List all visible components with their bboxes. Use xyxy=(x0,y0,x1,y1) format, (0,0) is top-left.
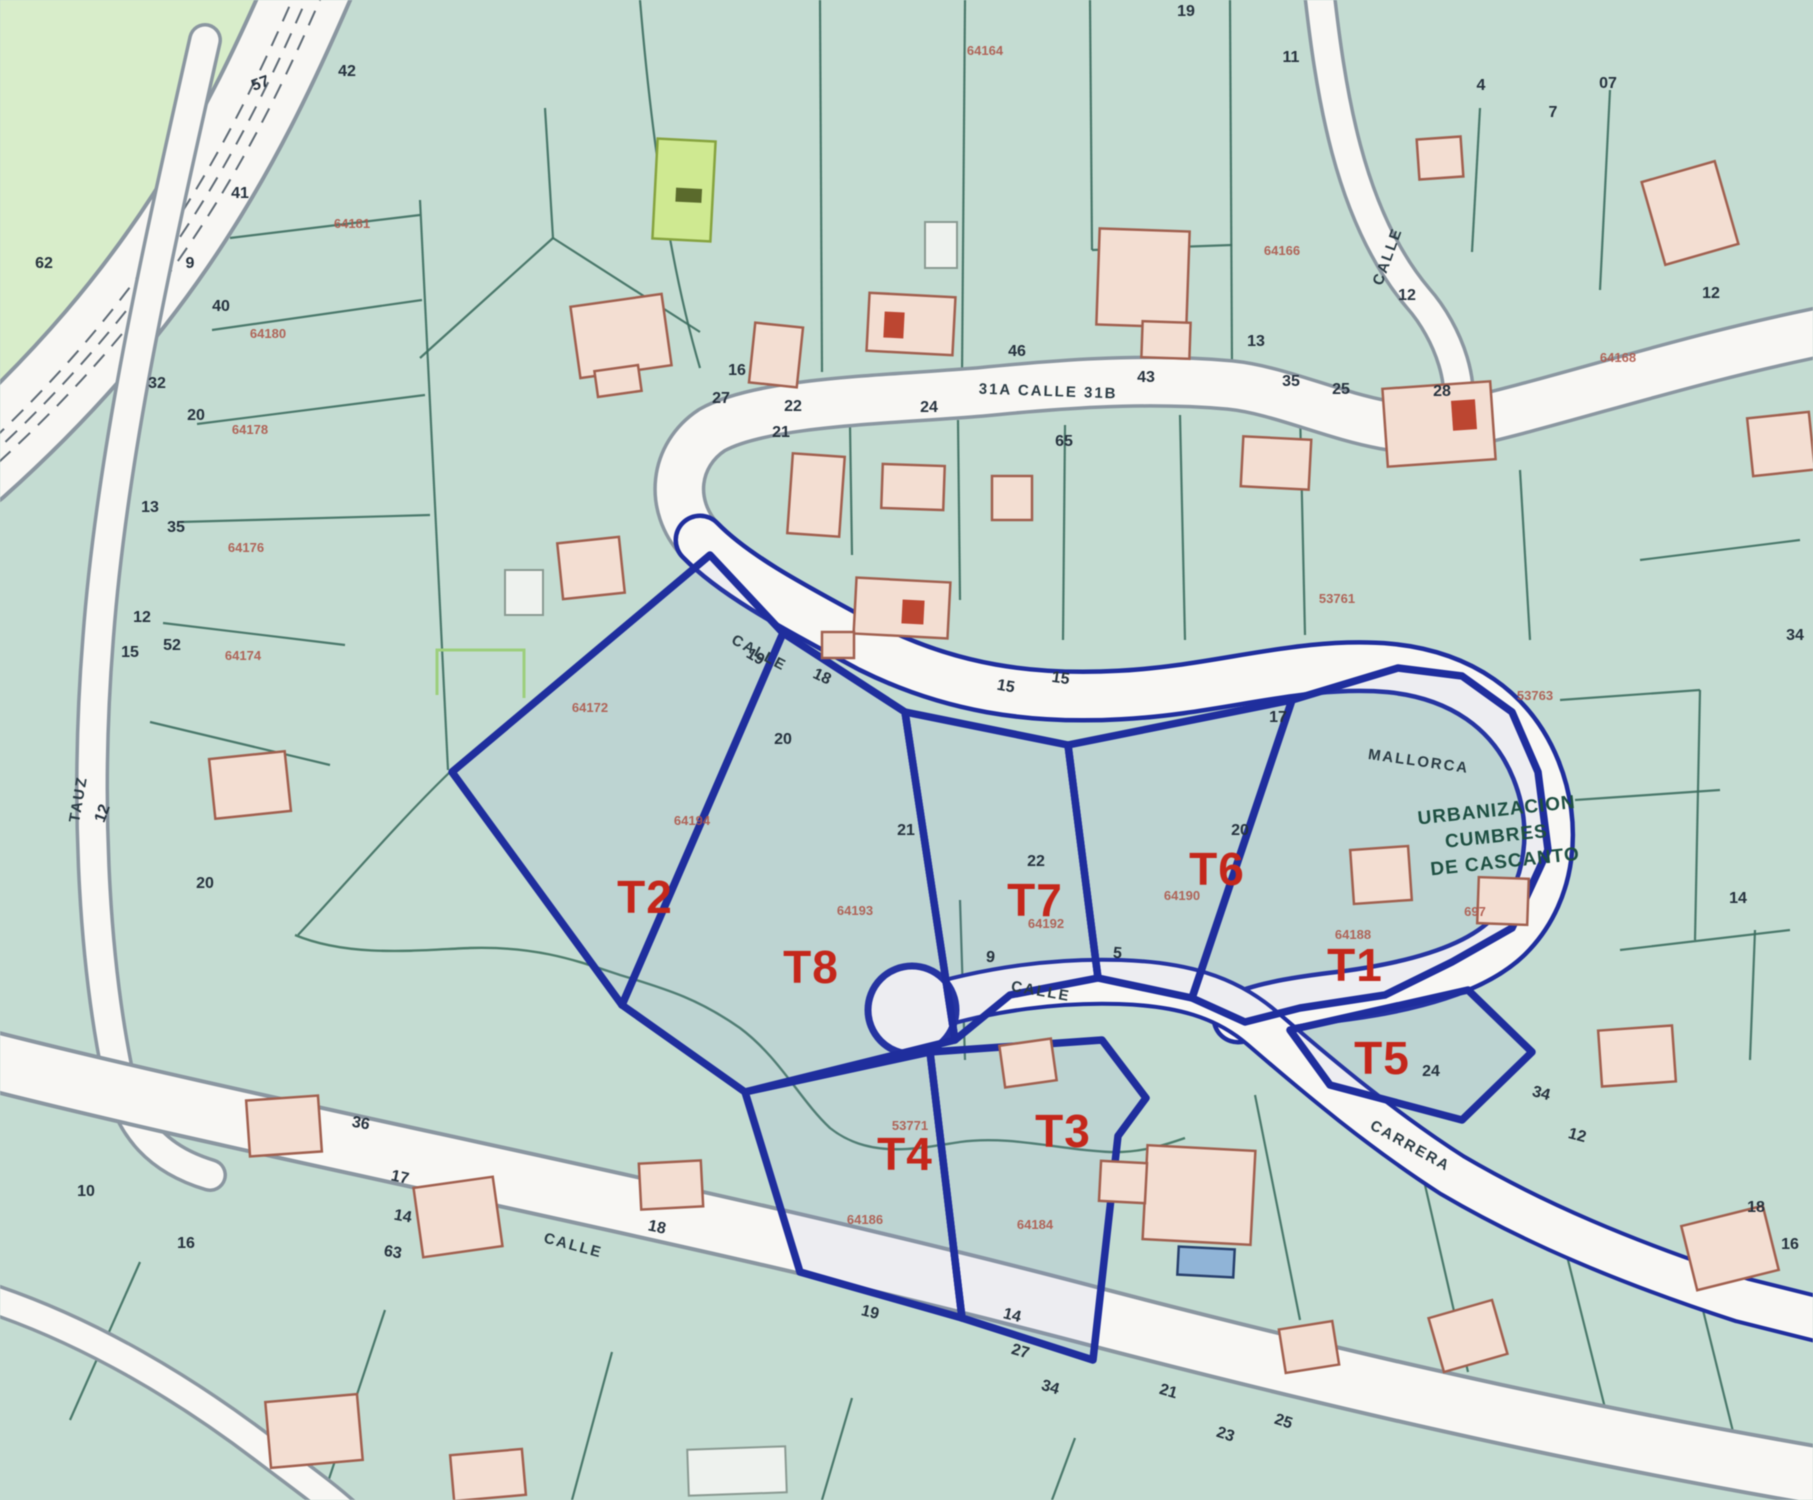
street-number: 52 xyxy=(163,637,181,654)
street-number: 5 xyxy=(1112,945,1122,963)
cadastral-map: URBANIZACION CUMBRES DE CASCANTO 6418164… xyxy=(0,0,1813,1500)
building xyxy=(246,1096,322,1157)
street-number: 17 xyxy=(389,1167,410,1187)
parcel-code: 64172 xyxy=(572,700,608,715)
street-number: 24 xyxy=(920,399,938,416)
street-number: 12 xyxy=(133,609,151,626)
parcel-code: 64184 xyxy=(1017,1217,1054,1232)
building xyxy=(209,751,291,819)
street-number: 07 xyxy=(1599,75,1617,92)
street-number: 36 xyxy=(351,1114,372,1134)
building xyxy=(1747,412,1813,476)
building xyxy=(1598,1025,1676,1086)
building xyxy=(749,323,803,388)
street-number: 18 xyxy=(646,1217,667,1237)
parcel-code: 64181 xyxy=(334,216,370,231)
map-canvas: URBANIZACION CUMBRES DE CASCANTO 6418164… xyxy=(0,0,1813,1500)
highlighted-parcel xyxy=(652,139,715,242)
building xyxy=(557,537,625,599)
building xyxy=(450,1449,526,1500)
street-number: 21 xyxy=(772,424,790,441)
building-pale xyxy=(505,570,543,615)
parcel-code: 64164 xyxy=(967,43,1004,58)
parcel-code: 64166 xyxy=(1264,243,1300,258)
building xyxy=(1143,1145,1256,1245)
street-number: 27 xyxy=(712,390,730,407)
parcel-code: 64178 xyxy=(232,422,268,437)
building xyxy=(1241,436,1312,489)
street-number: 15 xyxy=(121,644,139,661)
street-number: 28 xyxy=(1433,383,1451,400)
street-number: 14 xyxy=(393,1207,414,1227)
parcel-code: 64168 xyxy=(1600,350,1636,365)
parcel-code: 53761 xyxy=(1319,591,1355,606)
building xyxy=(787,453,844,536)
building xyxy=(1099,1161,1147,1203)
plot-label-T1: T1 xyxy=(1327,939,1383,991)
street-number: 10 xyxy=(77,1183,95,1200)
building xyxy=(570,294,671,378)
parcel-code: 697 xyxy=(1464,904,1486,919)
building xyxy=(1417,137,1464,180)
street-number: 22 xyxy=(784,398,802,415)
plot-label-T8: T8 xyxy=(783,941,839,993)
building xyxy=(881,464,944,510)
parcel-code: 64180 xyxy=(250,326,286,341)
parcel-code: 64186 xyxy=(847,1212,883,1227)
street-number: 4 xyxy=(1477,77,1486,94)
street-number: 13 xyxy=(1247,333,1265,350)
building-mark xyxy=(1451,399,1477,431)
parcel-code: 64193 xyxy=(837,903,873,918)
plot-label-T3: T3 xyxy=(1035,1105,1091,1157)
street-number: 34 xyxy=(1786,627,1804,644)
street-number: 12 xyxy=(1398,287,1416,304)
street-number: 35 xyxy=(1282,373,1300,390)
street-number: 62 xyxy=(35,255,53,272)
street-number: 20 xyxy=(1231,822,1249,839)
pool xyxy=(1177,1247,1234,1278)
building xyxy=(265,1394,362,1468)
plot-label-T5: T5 xyxy=(1354,1032,1410,1084)
building xyxy=(1350,846,1412,904)
street-number: 32 xyxy=(148,375,166,392)
street-number: 40 xyxy=(212,298,230,315)
building xyxy=(999,1039,1056,1088)
building-pale xyxy=(925,222,957,268)
street-number: 16 xyxy=(177,1235,195,1252)
plot-label-T7: T7 xyxy=(1007,874,1063,926)
parcel-code: 64176 xyxy=(228,540,264,555)
plot-label-T2: T2 xyxy=(617,871,673,923)
street-number: 18 xyxy=(1747,1199,1765,1216)
street-number: 9 xyxy=(985,949,995,967)
building xyxy=(822,632,854,658)
street-number: 9 xyxy=(186,255,195,272)
street-number: 13 xyxy=(141,499,159,516)
street-number: 25 xyxy=(1332,381,1350,398)
street-number: 16 xyxy=(1781,1236,1799,1253)
street-number: 15 xyxy=(996,677,1017,697)
building xyxy=(1279,1321,1339,1373)
building xyxy=(867,293,956,355)
building xyxy=(639,1160,703,1209)
street-number: 21 xyxy=(897,822,915,839)
building-pale xyxy=(687,1446,787,1495)
parcel-code: 53763 xyxy=(1517,688,1553,703)
parcel-code: 64174 xyxy=(225,648,262,663)
street-number: 35 xyxy=(167,519,185,536)
street-number: 22 xyxy=(1027,853,1045,870)
building-mark xyxy=(883,311,904,338)
street-number: 19 xyxy=(1177,3,1195,20)
street-number: 11 xyxy=(1283,49,1300,66)
street-number: 41 xyxy=(231,185,249,202)
parcel-code: 64194 xyxy=(674,813,711,828)
street-number: 46 xyxy=(1008,343,1026,360)
street-number: 16 xyxy=(728,362,746,379)
street-number: 20 xyxy=(187,407,205,424)
building xyxy=(992,476,1032,520)
building-mark xyxy=(901,599,924,624)
street-number: 65 xyxy=(1055,433,1073,450)
street-number: 17 xyxy=(1269,709,1287,726)
building xyxy=(1141,321,1190,359)
street-number: 63 xyxy=(383,1243,404,1263)
building xyxy=(854,578,951,639)
building xyxy=(1096,228,1189,327)
street-number: 15 xyxy=(1051,669,1071,688)
street-number: 20 xyxy=(774,731,792,748)
street-number: 24 xyxy=(1422,1063,1440,1080)
plot-label-T6: T6 xyxy=(1189,843,1245,895)
street-number: 12 xyxy=(1702,285,1720,302)
street-number: 14 xyxy=(1729,890,1747,907)
building xyxy=(594,365,641,397)
building xyxy=(414,1177,503,1257)
plot-label-T4: T4 xyxy=(877,1128,933,1180)
street-number: 43 xyxy=(1137,369,1155,386)
street-number: 20 xyxy=(196,875,214,892)
street-number: 7 xyxy=(1549,104,1558,121)
street-number: 42 xyxy=(338,63,356,80)
